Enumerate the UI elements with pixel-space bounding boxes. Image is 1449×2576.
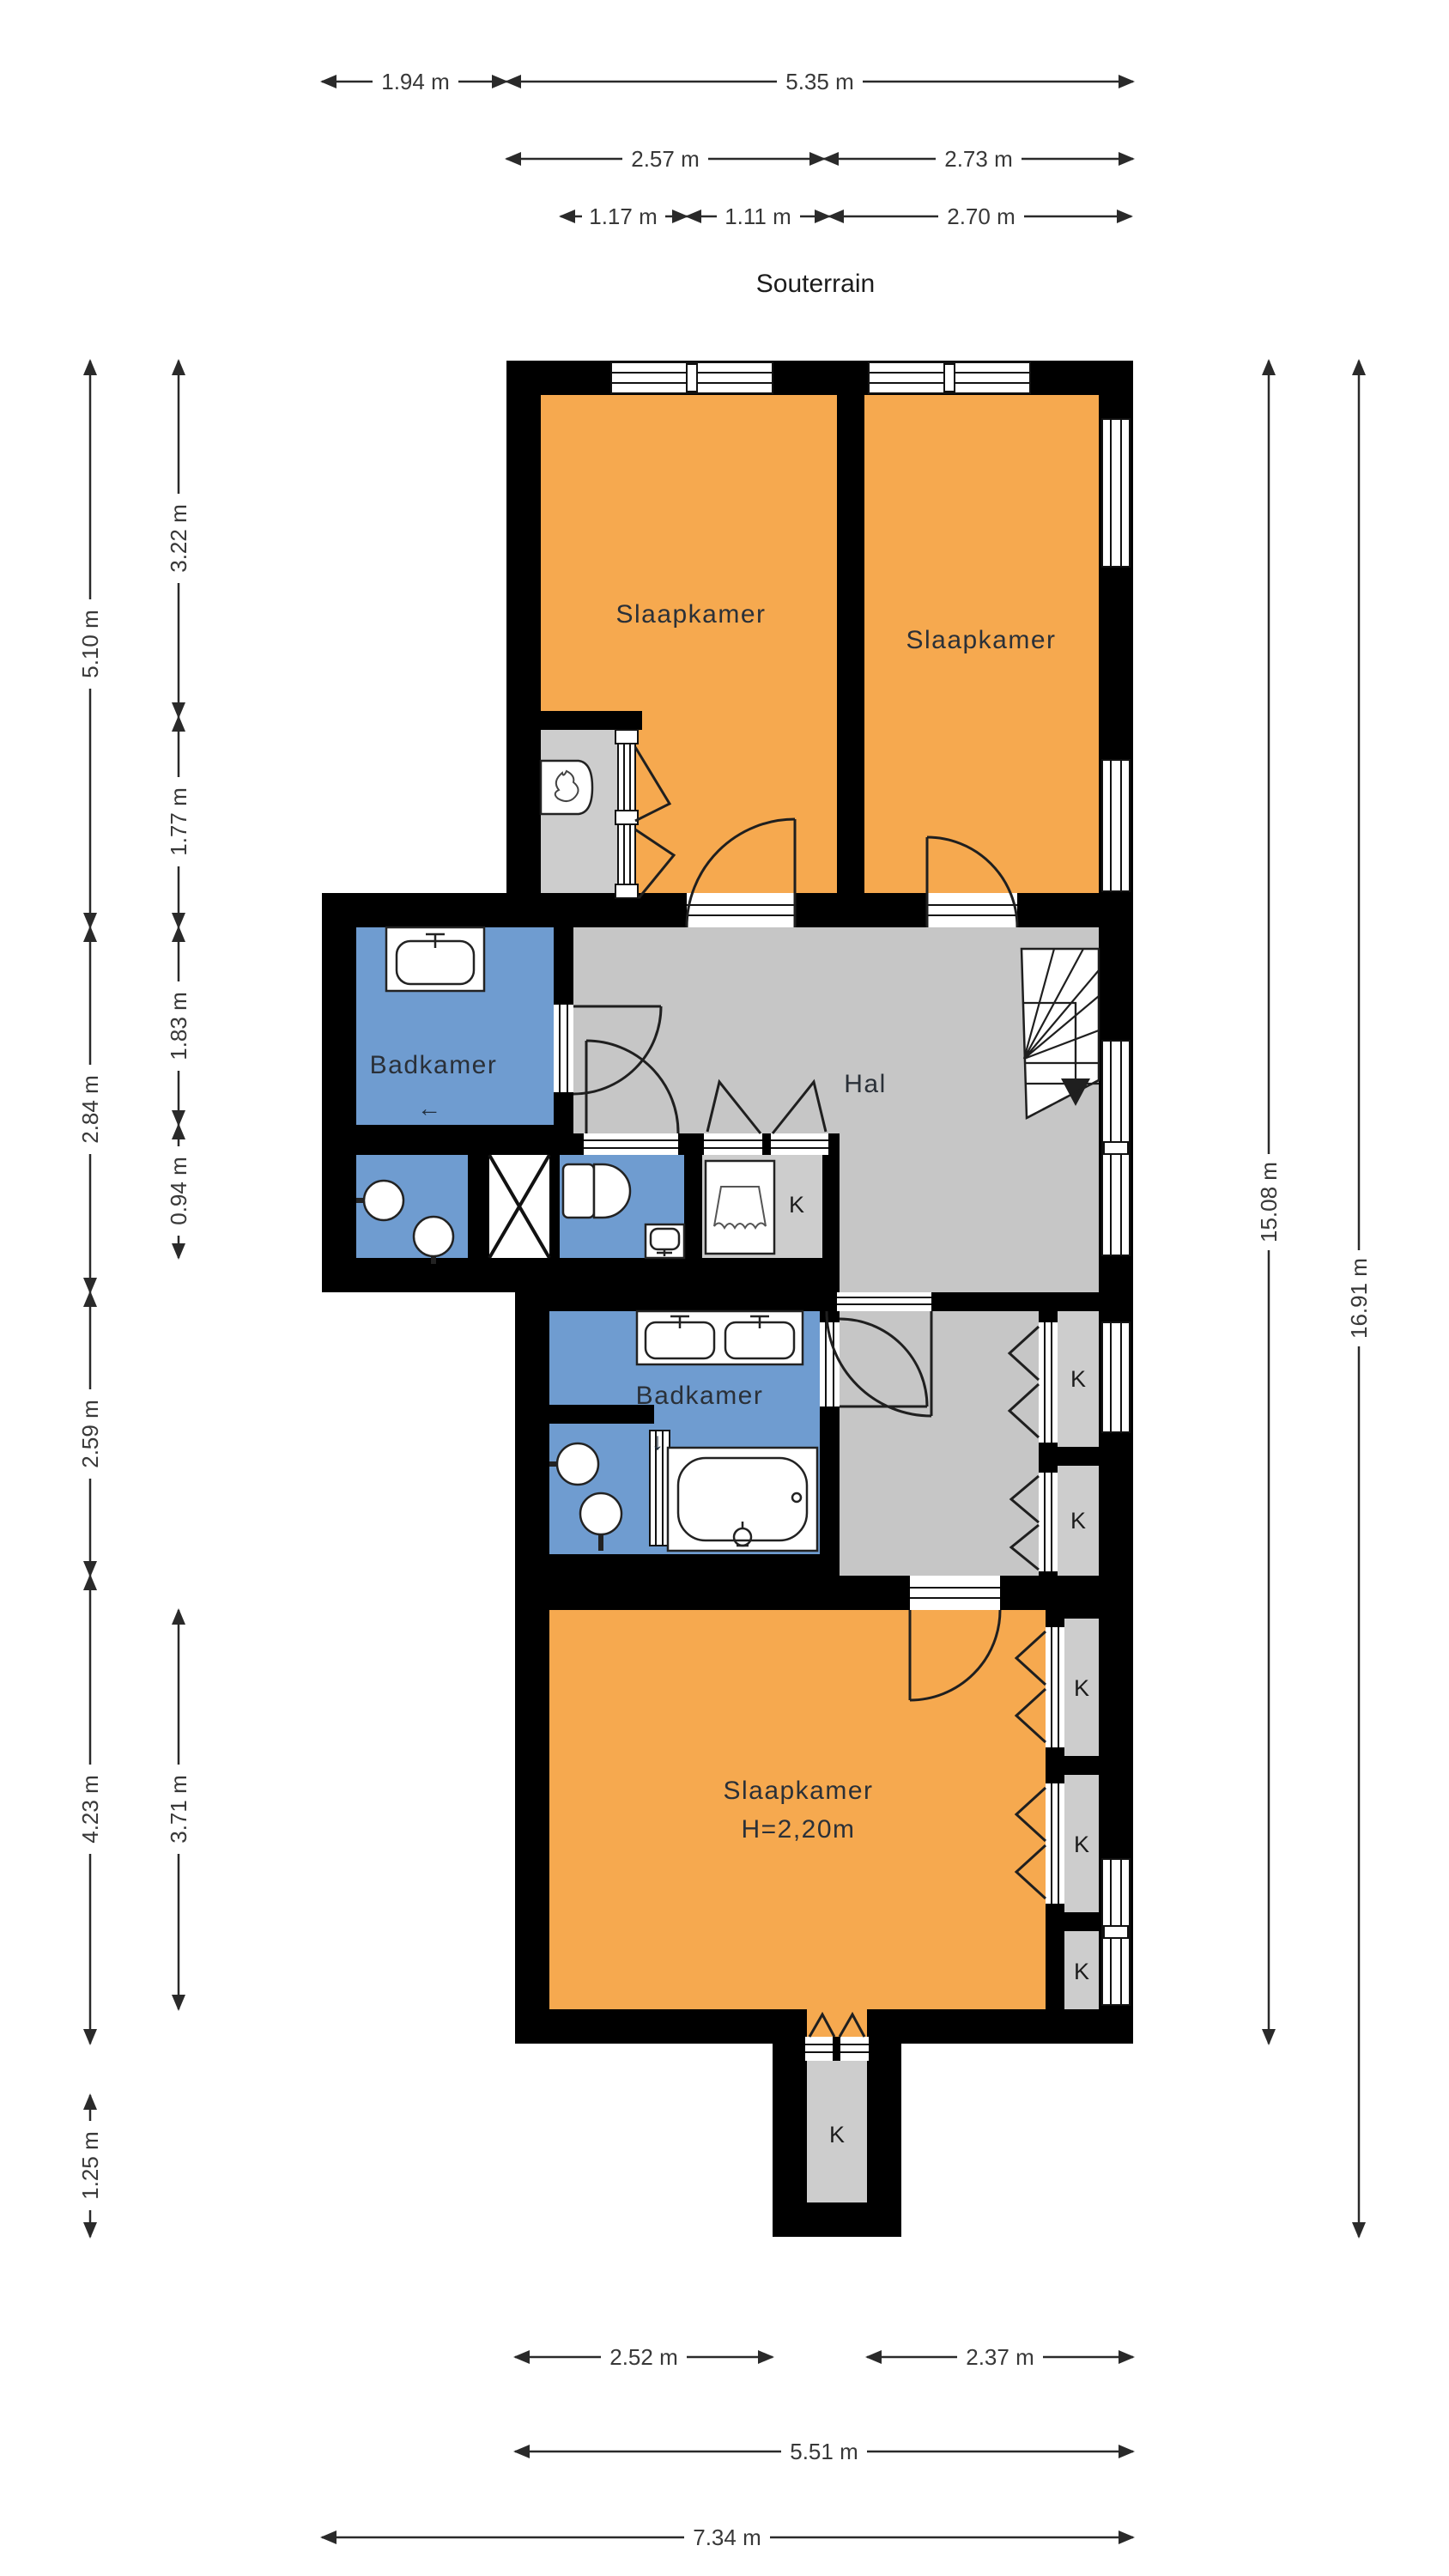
sink-icon-upper-bathroom [386, 927, 484, 991]
svg-text:7.34 m: 7.34 m [693, 2524, 761, 2550]
room-slaapkamer-bottom [549, 1610, 1046, 2009]
toilet-icon [563, 1164, 630, 1218]
closet-label-corridor-bottom: K [1070, 1508, 1086, 1534]
window-right-bedroom2-lower [1102, 760, 1130, 891]
svg-text:5.10 m: 5.10 m [77, 610, 103, 678]
svg-text:2.52 m: 2.52 m [609, 2344, 678, 2370]
dim-top-111: 1.11 m [687, 203, 829, 230]
dim-left-423: 4.23 m [76, 1576, 104, 2044]
sink-icon-toilet [646, 1224, 684, 1258]
arrow-badkamer-upper: ← [417, 1095, 441, 1121]
bathtub-icon [668, 1448, 817, 1551]
room-label-slaapkamer-bottom: Slaapkamer [723, 1777, 873, 1805]
window-right-corridor-closet [1102, 1322, 1130, 1432]
dim-right-1691: 16.91 m [1345, 361, 1373, 2237]
dim-bottom-734: 7.34 m [322, 2524, 1133, 2551]
dim-bottom-252: 2.52 m [515, 2343, 773, 2371]
svg-text:1.94 m: 1.94 m [381, 69, 450, 94]
louvre-door-icon [615, 730, 638, 898]
dim-top-117: 1.17 m [561, 203, 687, 230]
svg-text:3.22 m: 3.22 m [166, 504, 191, 573]
dim-left-183: 1.83 m [165, 927, 192, 1125]
window-right-bedroom2-upper [1102, 419, 1130, 567]
dim-left-371: 3.71 m [165, 1610, 192, 2009]
wardrobe-icon [706, 1161, 774, 1254]
window-right-hal [1102, 1041, 1130, 1255]
window-right-bedroom-closet [1102, 1859, 1130, 2005]
room-label-badkamer-upper: Badkamer [370, 1051, 498, 1079]
dim-bottom-237: 2.37 m [867, 2343, 1133, 2371]
dim-left-284: 2.84 m [76, 927, 104, 1292]
dim-right-1508: 15.08 m [1255, 361, 1282, 2044]
closet-label-bedroom-top: K [1074, 1675, 1089, 1701]
dim-top-257: 2.57 m [506, 145, 824, 173]
closet-label-cellar: K [829, 2122, 845, 2148]
closet-label-bedroom-bottom: K [1074, 1959, 1089, 1984]
dim-left-259: 2.59 m [76, 1292, 104, 1576]
room-label-slaapkamer-bottom-height: H=2,20m [741, 1815, 855, 1844]
window-top-right [869, 362, 1030, 393]
svg-text:0.94 m: 0.94 m [166, 1157, 191, 1225]
svg-text:2.70 m: 2.70 m [947, 204, 1016, 229]
svg-text:16.91 m: 16.91 m [1346, 1258, 1372, 1339]
room-label-badkamer-lower: Badkamer [636, 1382, 764, 1410]
dim-top-194: 1.94 m [322, 68, 506, 95]
svg-text:2.57 m: 2.57 m [631, 146, 700, 172]
dim-left-125: 1.25 m [76, 2095, 104, 2237]
floorplan-page: Souterrain Slaapkamer Slaapkamer Badkame… [0, 0, 1449, 2576]
window-top-left [611, 362, 773, 393]
arrow-badkamer-lower: ↓ [652, 1428, 664, 1455]
floorplan-canvas: Souterrain Slaapkamer Slaapkamer Badkame… [0, 0, 1449, 2576]
svg-text:3.71 m: 3.71 m [166, 1775, 191, 1844]
svg-text:1.83 m: 1.83 m [166, 992, 191, 1060]
dim-top-273: 2.73 m [824, 145, 1133, 173]
dim-left-510: 5.10 m [76, 361, 104, 927]
boiler-icon [541, 761, 592, 814]
svg-text:5.35 m: 5.35 m [785, 69, 854, 94]
room-hal-lower [840, 1133, 1099, 1292]
room-hal-upper [573, 927, 1099, 1133]
svg-text:1.25 m: 1.25 m [77, 2131, 103, 2200]
title: Souterrain [756, 270, 875, 298]
svg-text:15.08 m: 15.08 m [1256, 1162, 1282, 1242]
svg-text:5.51 m: 5.51 m [790, 2439, 858, 2464]
svg-text:2.73 m: 2.73 m [944, 146, 1013, 172]
svg-text:2.59 m: 2.59 m [77, 1400, 103, 1468]
dim-left-177: 1.77 m [165, 717, 192, 927]
room-corridor [840, 1311, 1039, 1576]
svg-text:4.23 m: 4.23 m [77, 1775, 103, 1844]
room-label-slaapkamer-top-right: Slaapkamer [906, 626, 1056, 654]
room-label-slaapkamer-top-left: Slaapkamer [615, 600, 766, 629]
dim-top-535: 5.35 m [506, 68, 1133, 95]
closet-label-bedroom-middle: K [1074, 1832, 1089, 1857]
svg-text:1.77 m: 1.77 m [166, 787, 191, 856]
svg-text:1.17 m: 1.17 m [589, 204, 658, 229]
closet-label-hall: K [789, 1192, 804, 1218]
dim-top-270: 2.70 m [829, 203, 1131, 230]
svg-text:2.37 m: 2.37 m [966, 2344, 1034, 2370]
dim-left-094: 0.94 m [165, 1125, 192, 1258]
dim-left-322: 3.22 m [165, 361, 192, 717]
svg-text:1.11 m: 1.11 m [724, 204, 791, 229]
dim-bottom-551: 5.51 m [515, 2438, 1133, 2465]
room-label-hal: Hal [844, 1070, 887, 1098]
svg-text:2.84 m: 2.84 m [77, 1075, 103, 1144]
sink-icon-lower-bathroom [637, 1311, 803, 1364]
closet-label-corridor-top: K [1070, 1366, 1086, 1392]
